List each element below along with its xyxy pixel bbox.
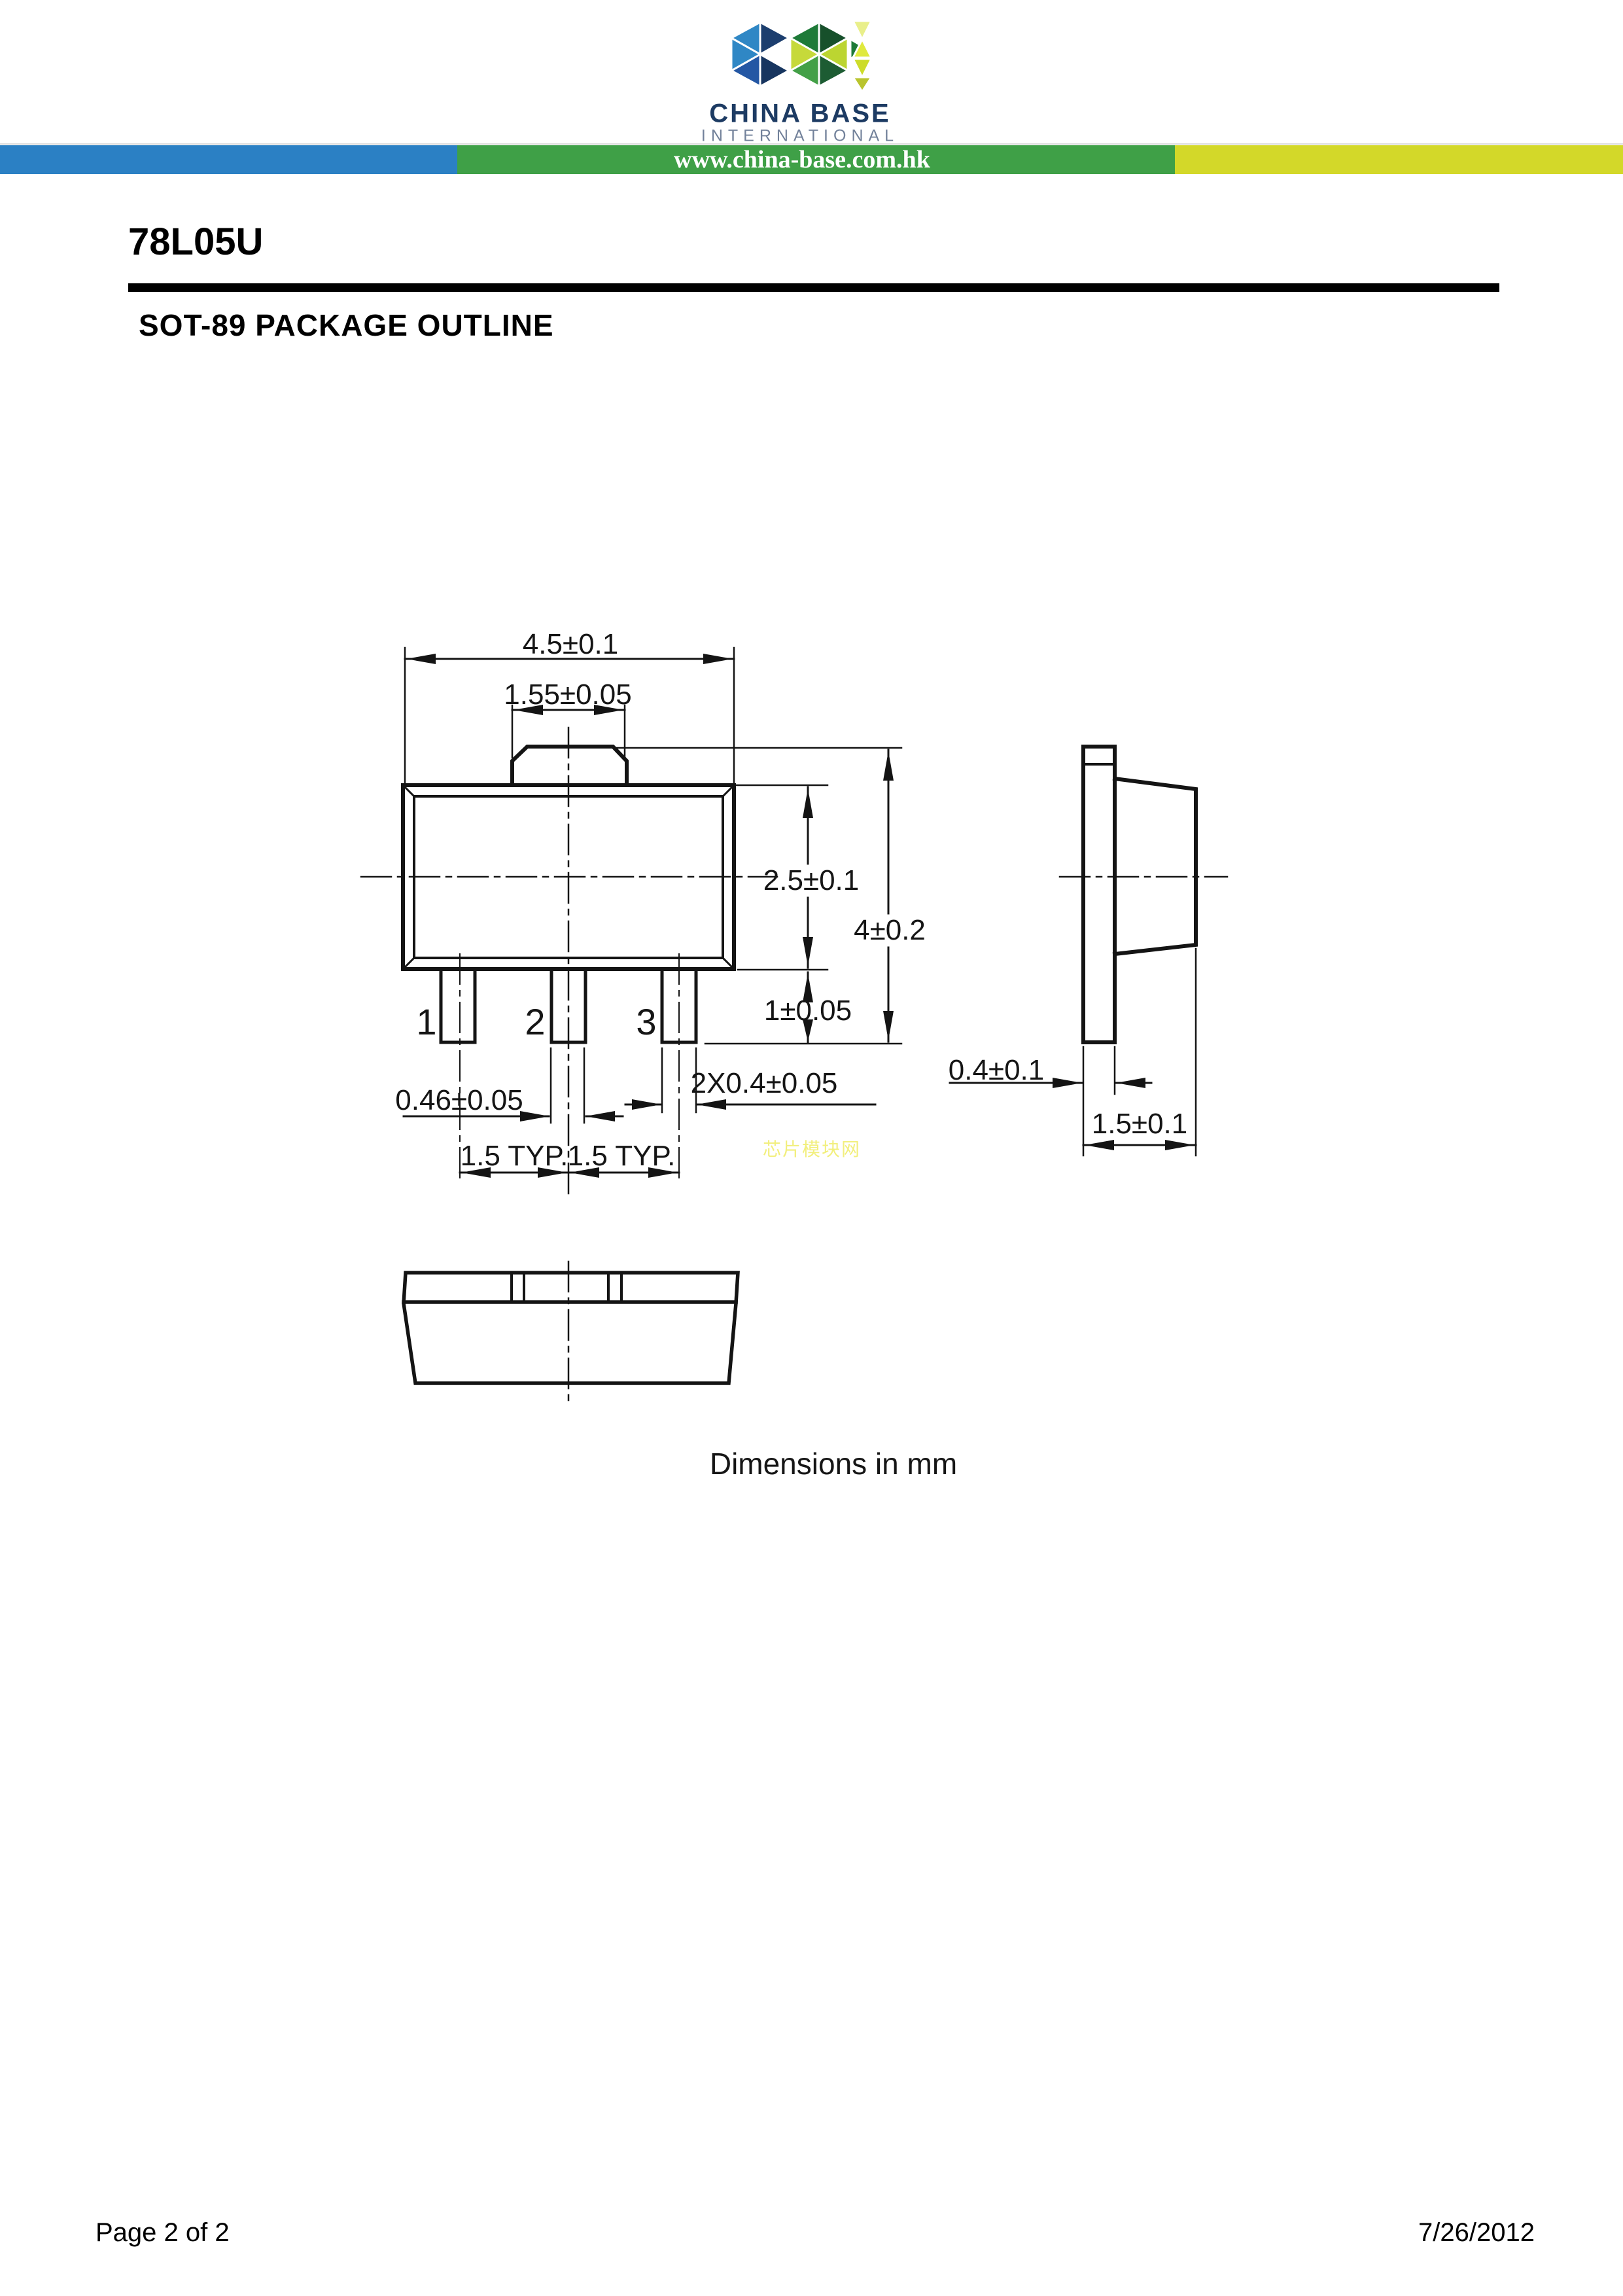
dim-tab-width-label: 1.55±0.05 — [504, 680, 631, 709]
pin-1-label: 1 — [416, 1004, 436, 1040]
dim-body-thickness-label: 1.5±0.1 — [1092, 1110, 1187, 1139]
pin-2-label: 2 — [525, 1004, 545, 1040]
front-view — [361, 728, 777, 1196]
footer-date: 7/26/2012 — [1418, 2219, 1535, 2246]
watermark-text: 芯片模块网 — [763, 1140, 861, 1159]
dim-tab-thickness-label: 0.4±0.1 — [949, 1056, 1044, 1085]
dim-center-lead-width-label: 0.46±0.05 — [395, 1086, 523, 1115]
dim-lead-pitch-a-label: 1.5 TYP. — [461, 1142, 568, 1171]
pin-3-label: 3 — [636, 1004, 656, 1040]
side-view — [1060, 747, 1227, 1042]
dim-lead-length-label: 1±0.05 — [764, 997, 852, 1025]
dim-lead-pitch-b-label: 1.5 TYP. — [568, 1142, 676, 1171]
dim-body-width-label: 4.5±0.1 — [523, 630, 618, 659]
datasheet-page: CHINA BASE INTERNATIONAL www.china-base.… — [0, 0, 1623, 2296]
dim-body-height-label: 2.5±0.1 — [763, 866, 859, 895]
bottom-view — [404, 1262, 738, 1403]
dimensions-note: Dimensions in mm — [710, 1449, 957, 1479]
dim-overall-height-label: 4±0.2 — [854, 916, 926, 945]
footer-page-number: Page 2 of 2 — [96, 2219, 230, 2246]
dim-outer-lead-width-label: 2X0.4±0.05 — [691, 1069, 838, 1098]
